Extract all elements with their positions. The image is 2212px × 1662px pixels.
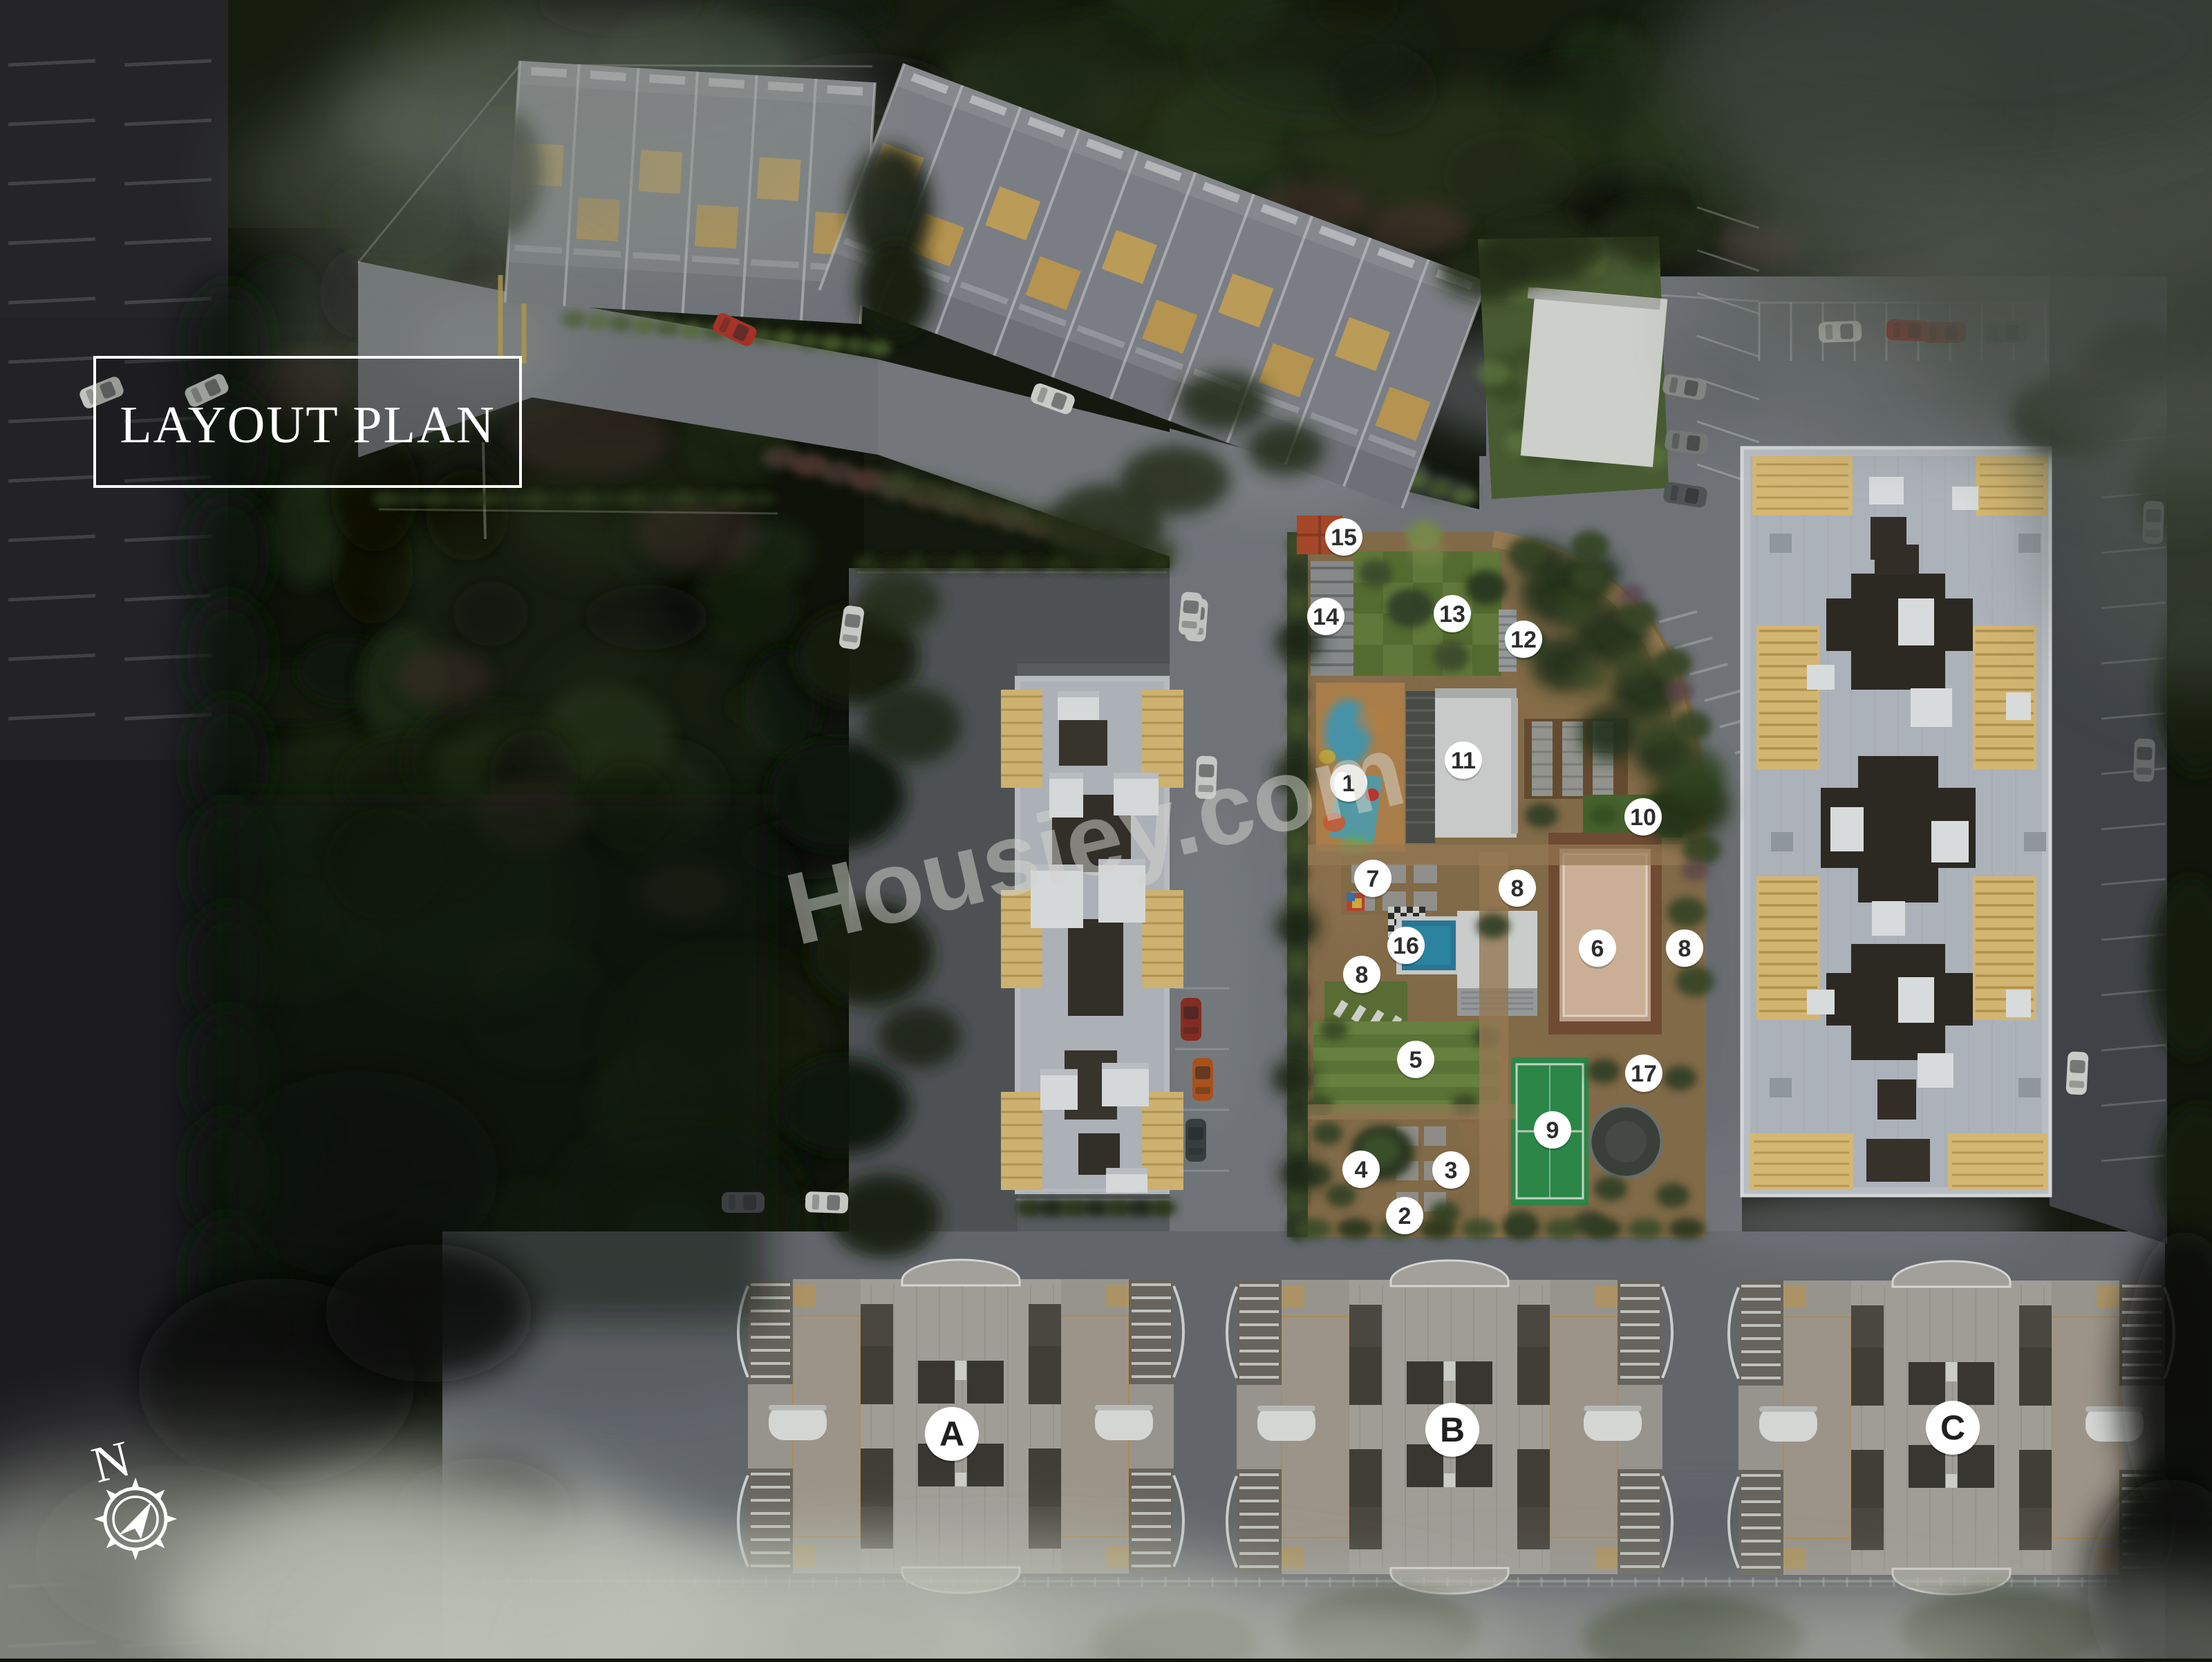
svg-text:4: 4 xyxy=(1355,1157,1368,1183)
svg-text:9: 9 xyxy=(1546,1117,1559,1144)
svg-text:11: 11 xyxy=(1451,748,1476,774)
svg-text:5: 5 xyxy=(1409,1047,1423,1073)
svg-text:8: 8 xyxy=(1356,962,1369,988)
svg-text:2: 2 xyxy=(1398,1203,1412,1229)
svg-text:17: 17 xyxy=(1631,1061,1657,1087)
svg-text:8: 8 xyxy=(1511,876,1524,902)
svg-text:6: 6 xyxy=(1591,936,1604,962)
svg-text:12: 12 xyxy=(1510,627,1537,653)
svg-text:10: 10 xyxy=(1630,804,1656,831)
svg-text:13: 13 xyxy=(1439,601,1465,627)
svg-text:A: A xyxy=(939,1415,964,1453)
svg-text:15: 15 xyxy=(1331,525,1357,551)
svg-text:8: 8 xyxy=(1678,936,1691,962)
svg-text:3: 3 xyxy=(1445,1158,1458,1184)
svg-text:B: B xyxy=(1440,1410,1465,1449)
svg-text:LAYOUT PLAN: LAYOUT PLAN xyxy=(120,396,496,454)
svg-text:7: 7 xyxy=(1367,866,1380,892)
svg-text:14: 14 xyxy=(1313,604,1339,630)
svg-text:16: 16 xyxy=(1393,933,1419,959)
svg-text:C: C xyxy=(1940,1408,1965,1447)
